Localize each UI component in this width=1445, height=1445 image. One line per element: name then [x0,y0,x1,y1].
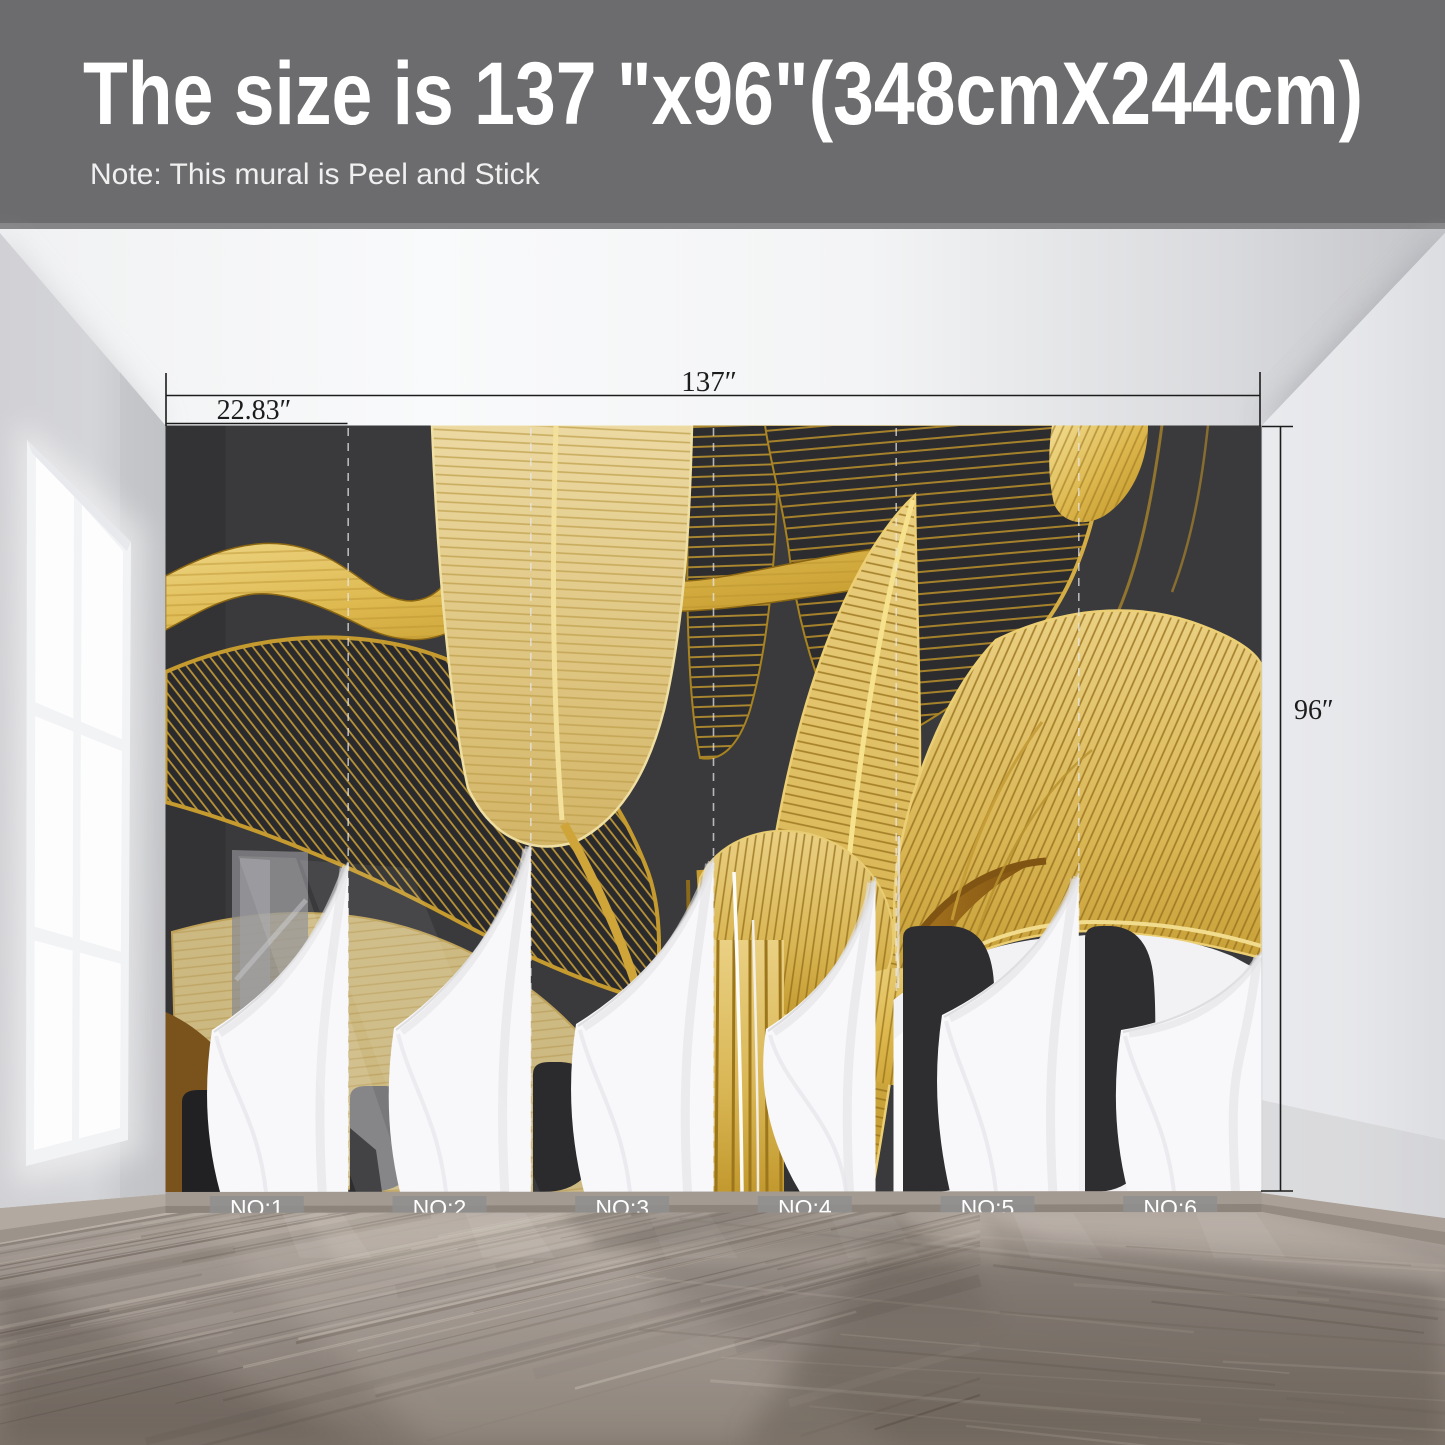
svg-text:Note: This mural is Peel and S: Note: This mural is Peel and Stick [90,158,541,191]
svg-text:96″: 96″ [1294,695,1334,726]
svg-text:137″: 137″ [681,366,737,398]
svg-text:The size is 137 "x96"(348cmX24: The size is 137 "x96"(348cmX244cm) [83,43,1363,143]
svg-text:22.83″: 22.83″ [217,395,292,426]
